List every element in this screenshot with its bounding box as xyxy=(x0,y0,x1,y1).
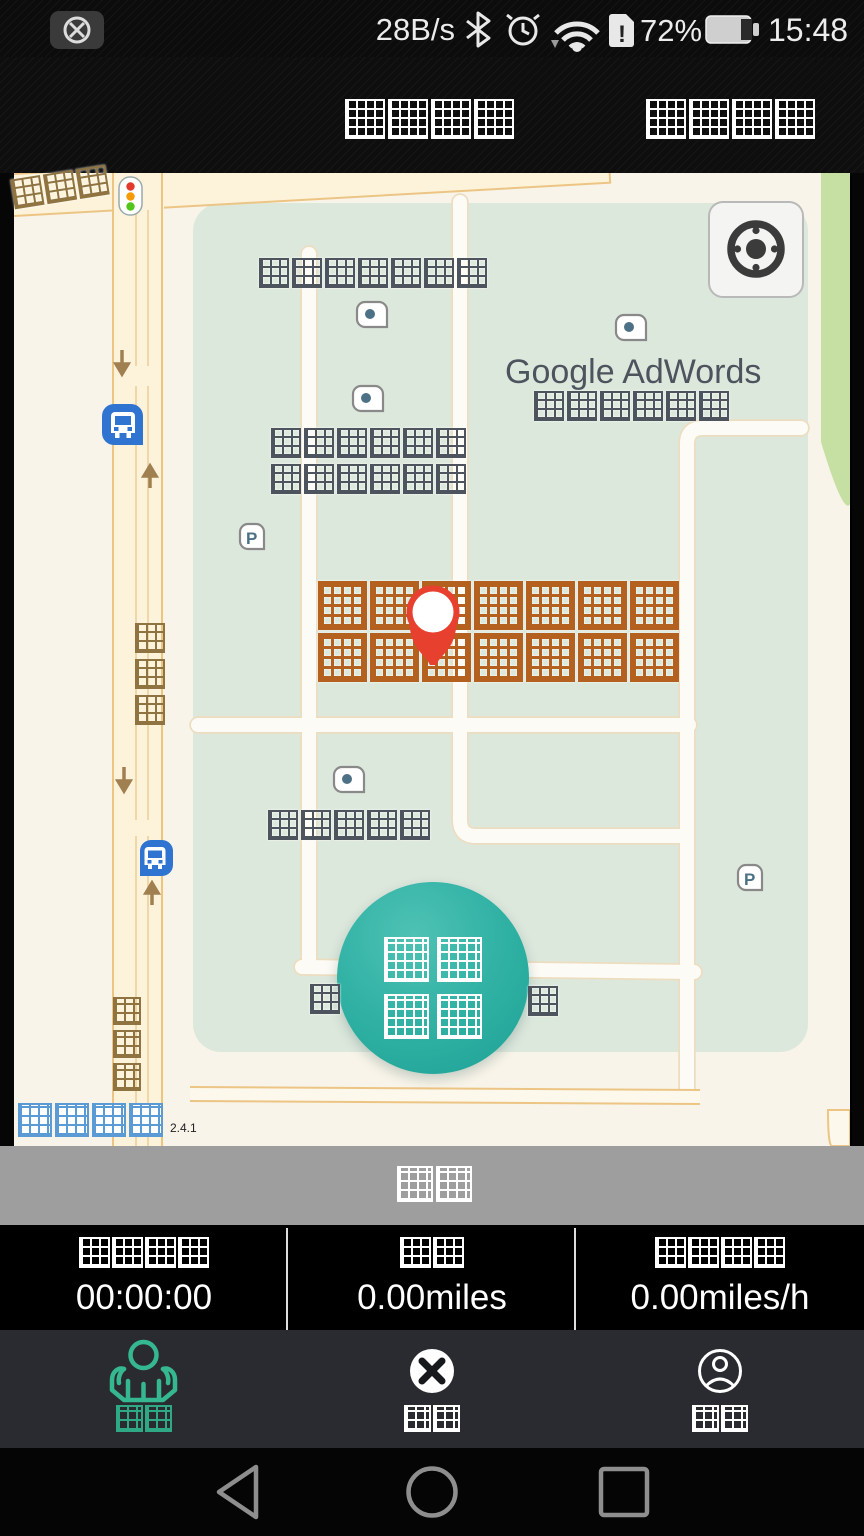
svg-text:!: ! xyxy=(618,21,626,48)
svg-text:P: P xyxy=(246,529,257,548)
svg-text:P: P xyxy=(744,870,755,889)
